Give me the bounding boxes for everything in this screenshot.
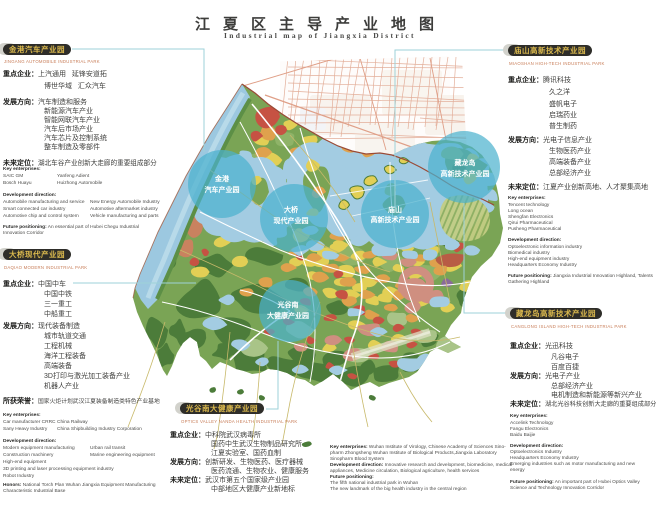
svg-text:光谷南: 光谷南	[277, 300, 299, 309]
svg-text:大桥: 大桥	[284, 205, 299, 214]
svg-text:大健康产业园: 大健康产业园	[267, 311, 309, 320]
svg-text:高新技术产业园: 高新技术产业园	[371, 215, 420, 224]
svg-text:藏龙岛: 藏龙岛	[455, 158, 476, 167]
svg-text:汽车产业园: 汽车产业园	[205, 185, 240, 194]
svg-text:高新技术产业园: 高新技术产业园	[441, 169, 490, 178]
svg-text:现代产业园: 现代产业园	[274, 216, 309, 225]
svg-text:金港: 金港	[214, 174, 230, 183]
